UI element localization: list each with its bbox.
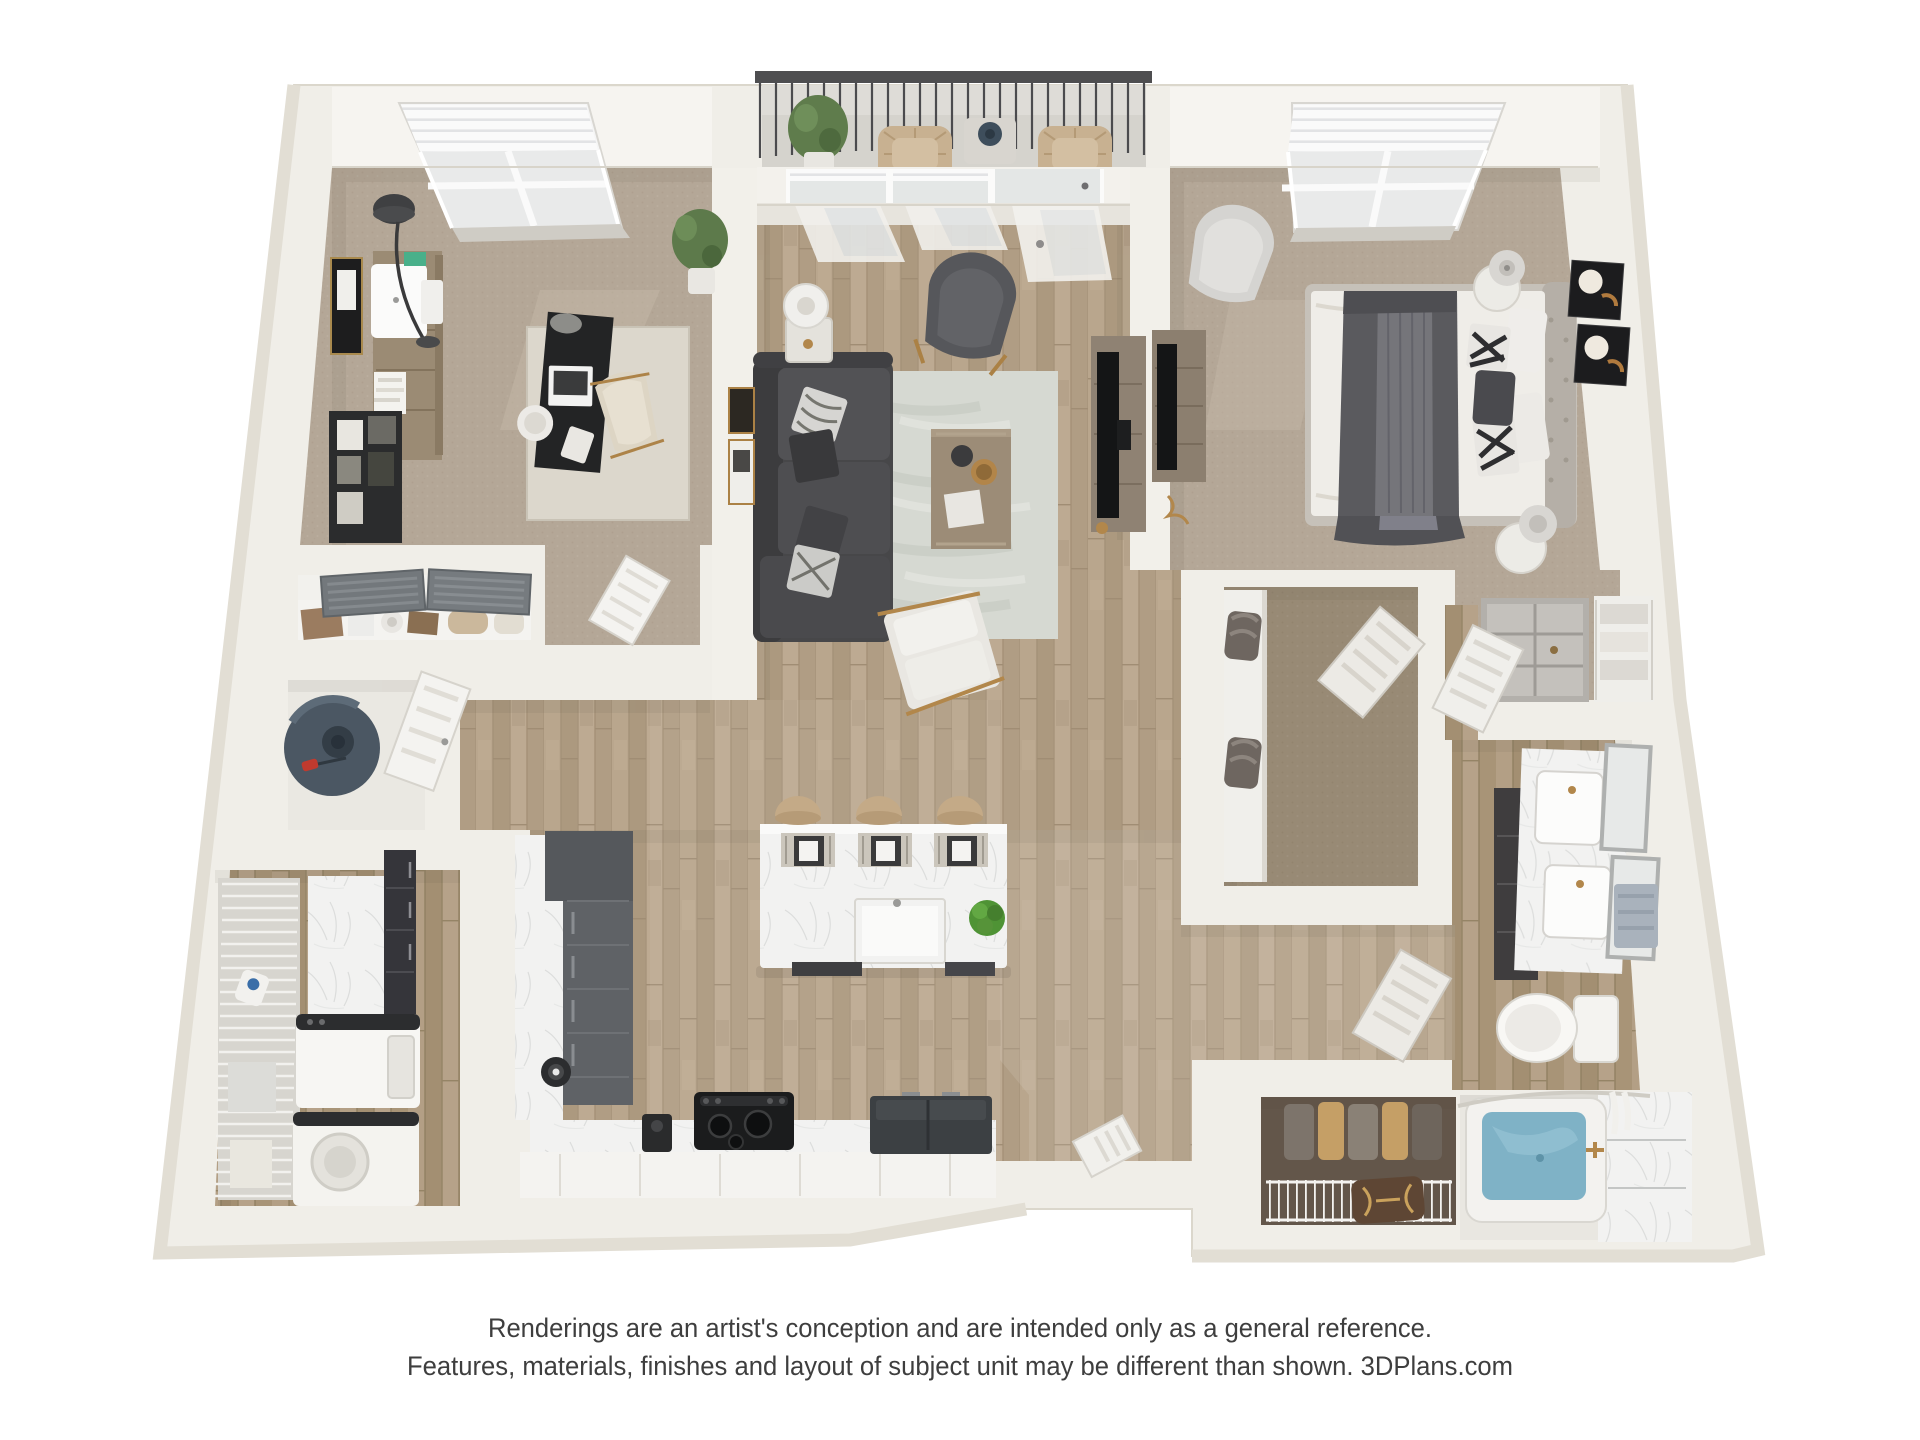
svg-text:Features, materials, finishes: Features, materials, finishes and layout… xyxy=(407,1351,1513,1381)
svg-text:Renderings are an artist's con: Renderings are an artist's conception an… xyxy=(488,1313,1432,1343)
